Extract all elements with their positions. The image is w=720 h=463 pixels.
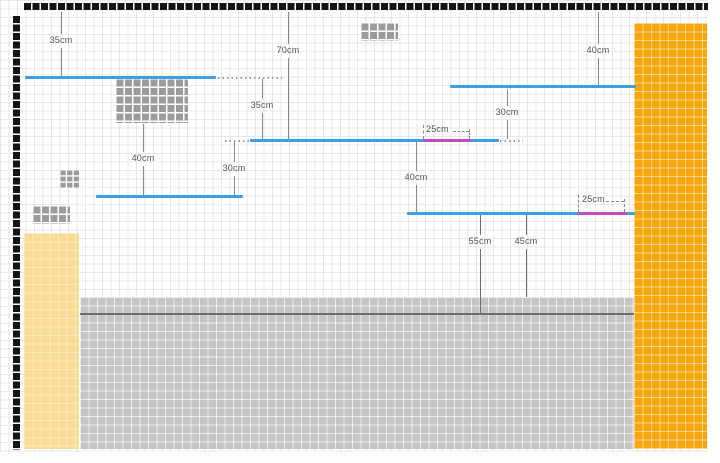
gray-block-left[interactable] [33,206,70,224]
measurement-label: 25cm [582,194,605,204]
measurement-label: 55cm [469,236,492,247]
yellow-column-region[interactable] [24,233,79,449]
bracket-line [606,201,624,202]
magenta-segment-shelf-2[interactable] [423,139,471,142]
bracket-25-shelf-2: 25cm [423,124,470,139]
measurement-line [143,124,144,152]
left-wall-dashed-border [13,16,20,450]
floorplan-canvas: 35cm 70cm 40cm 35cm 30cm 40cm 30cm 40cm [0,0,720,463]
floor-divider-line [80,313,634,315]
measurement-line [480,215,481,235]
shelf-1-dotted-extension [218,77,282,79]
measurement-line [143,166,144,195]
measurement-line [234,176,235,195]
measurement-label: 40cm [405,172,428,183]
measurement-label: 35cm [50,35,73,46]
measurement-label: 70cm [277,45,300,56]
measurement-line [598,58,599,85]
measurement-label: 30cm [223,163,246,174]
measurement-line [262,79,263,99]
bracket-tick [423,125,424,139]
measurement-line [234,142,235,162]
orange-column-region[interactable] [634,23,707,449]
measurement-label: 45cm [515,236,538,247]
bracket-tick [469,129,470,139]
measurement-line [288,12,289,44]
measurement-line [598,12,599,44]
measurement-line [480,249,481,313]
shelf-line-3[interactable] [96,195,243,198]
shelf-line-top-right[interactable] [450,85,636,88]
measurement-line [61,48,62,76]
measurement-line [416,142,417,171]
bracket-tick [578,195,579,212]
gray-block-under-shelf-1[interactable] [116,79,188,123]
shelf-2-dotted-extension-left [225,140,250,142]
shelf-line-1[interactable] [25,76,216,79]
measurement-line [262,113,263,139]
measurement-line [526,249,527,297]
magenta-segment-shelf-4[interactable] [578,212,627,215]
measurement-line [526,215,527,235]
measurement-label: 40cm [587,45,610,56]
shelf-2-dotted-extension-right [500,140,523,142]
bracket-line [453,131,469,132]
measurement-label: 40cm [132,153,155,164]
measurement-line [507,89,508,106]
gray-block-small-left[interactable] [60,170,80,188]
measurement-label: 25cm [426,124,449,134]
measurement-line [61,12,62,34]
measurement-label: 30cm [496,107,519,118]
measurement-line [416,185,417,212]
measurement-line [507,120,508,139]
measurement-label: 35cm [251,100,274,111]
floor-region[interactable] [80,297,634,449]
top-wall-dashed-border [24,3,708,10]
bracket-25-shelf-4: 25cm [578,194,625,212]
gray-block-ceiling[interactable] [361,23,398,41]
bracket-tick [624,199,625,212]
measurement-line [288,58,289,139]
